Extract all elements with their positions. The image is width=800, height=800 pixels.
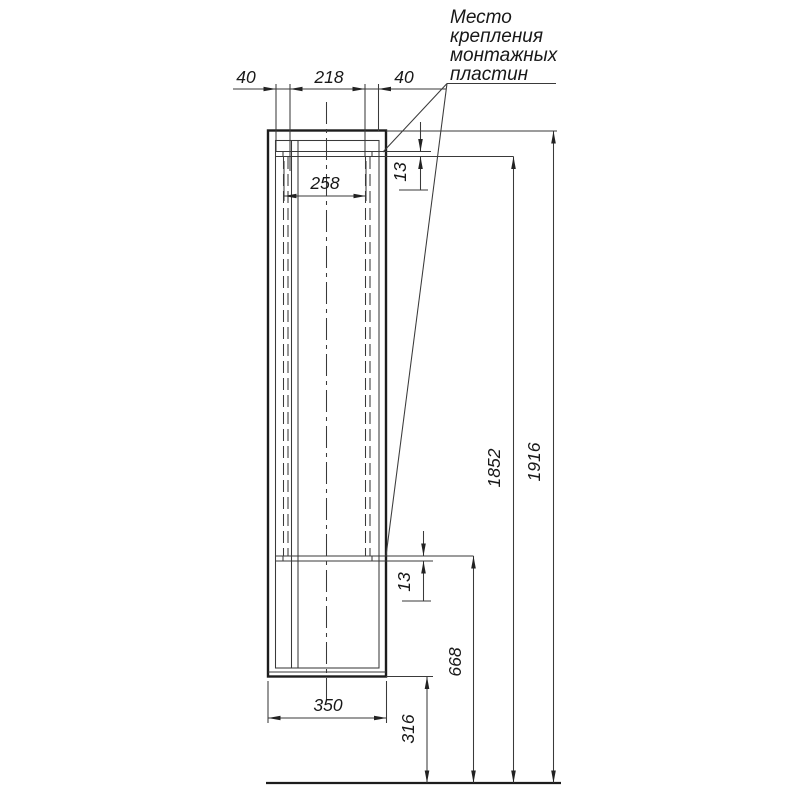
arrowhead [511, 157, 516, 170]
arrowhead [354, 194, 367, 199]
callout-text-line1: Место [450, 7, 512, 28]
arrowhead [418, 157, 423, 170]
dim-label-218: 218 [313, 67, 343, 87]
arrowhead [353, 87, 366, 92]
dim-label-40-right: 40 [394, 67, 414, 87]
arrowhead [284, 194, 297, 199]
dim-label-13-bottom: 13 [394, 572, 414, 592]
callout-text-line4: пластин [450, 64, 529, 85]
dim-label-350: 350 [313, 695, 342, 715]
arrowhead [290, 87, 303, 92]
dim-plate-bottom: 13 [394, 531, 431, 601]
arrowhead [374, 716, 387, 721]
callout-text-line2: крепления [450, 26, 543, 47]
dim-label-258: 258 [309, 173, 339, 193]
dim-inner-span: 258 [284, 161, 366, 201]
dim-lower-plate-height: 668 [445, 556, 476, 783]
callout-leader-bottom [386, 84, 447, 557]
dim-floor-clearance: 316 [398, 677, 429, 784]
arrowhead [421, 561, 426, 574]
arrowhead [511, 771, 516, 784]
arrowhead [471, 556, 476, 569]
dim-label-1852: 1852 [484, 448, 504, 487]
arrowhead [425, 677, 430, 690]
arrowhead [551, 131, 556, 144]
arrowhead [551, 771, 556, 784]
arrowhead [418, 139, 423, 152]
arrowhead [268, 716, 281, 721]
dim-upper-plate-height: 1852 [484, 157, 516, 784]
dim-cabinet-width: 350 [268, 681, 387, 723]
dim-label-316: 316 [398, 714, 418, 743]
arrowhead [425, 771, 430, 784]
dim-label-40-left: 40 [236, 67, 256, 87]
dim-total-height: 1916 [524, 131, 556, 783]
callout-text-line3: монтажных [450, 45, 559, 66]
arrowhead [264, 87, 277, 92]
mounting-plate-bottom [276, 556, 474, 561]
mounting-plate-top [276, 152, 514, 157]
arrowhead [471, 771, 476, 784]
arrowhead [379, 87, 392, 92]
technical-drawing-cabinet-side-view: 40 218 40 258 13 13 668 [0, 0, 800, 800]
dim-label-1916: 1916 [524, 442, 544, 481]
dim-label-13-top: 13 [390, 162, 410, 182]
arrowhead [421, 544, 426, 557]
dim-label-668: 668 [445, 647, 465, 676]
callout-leader-top [383, 84, 447, 153]
